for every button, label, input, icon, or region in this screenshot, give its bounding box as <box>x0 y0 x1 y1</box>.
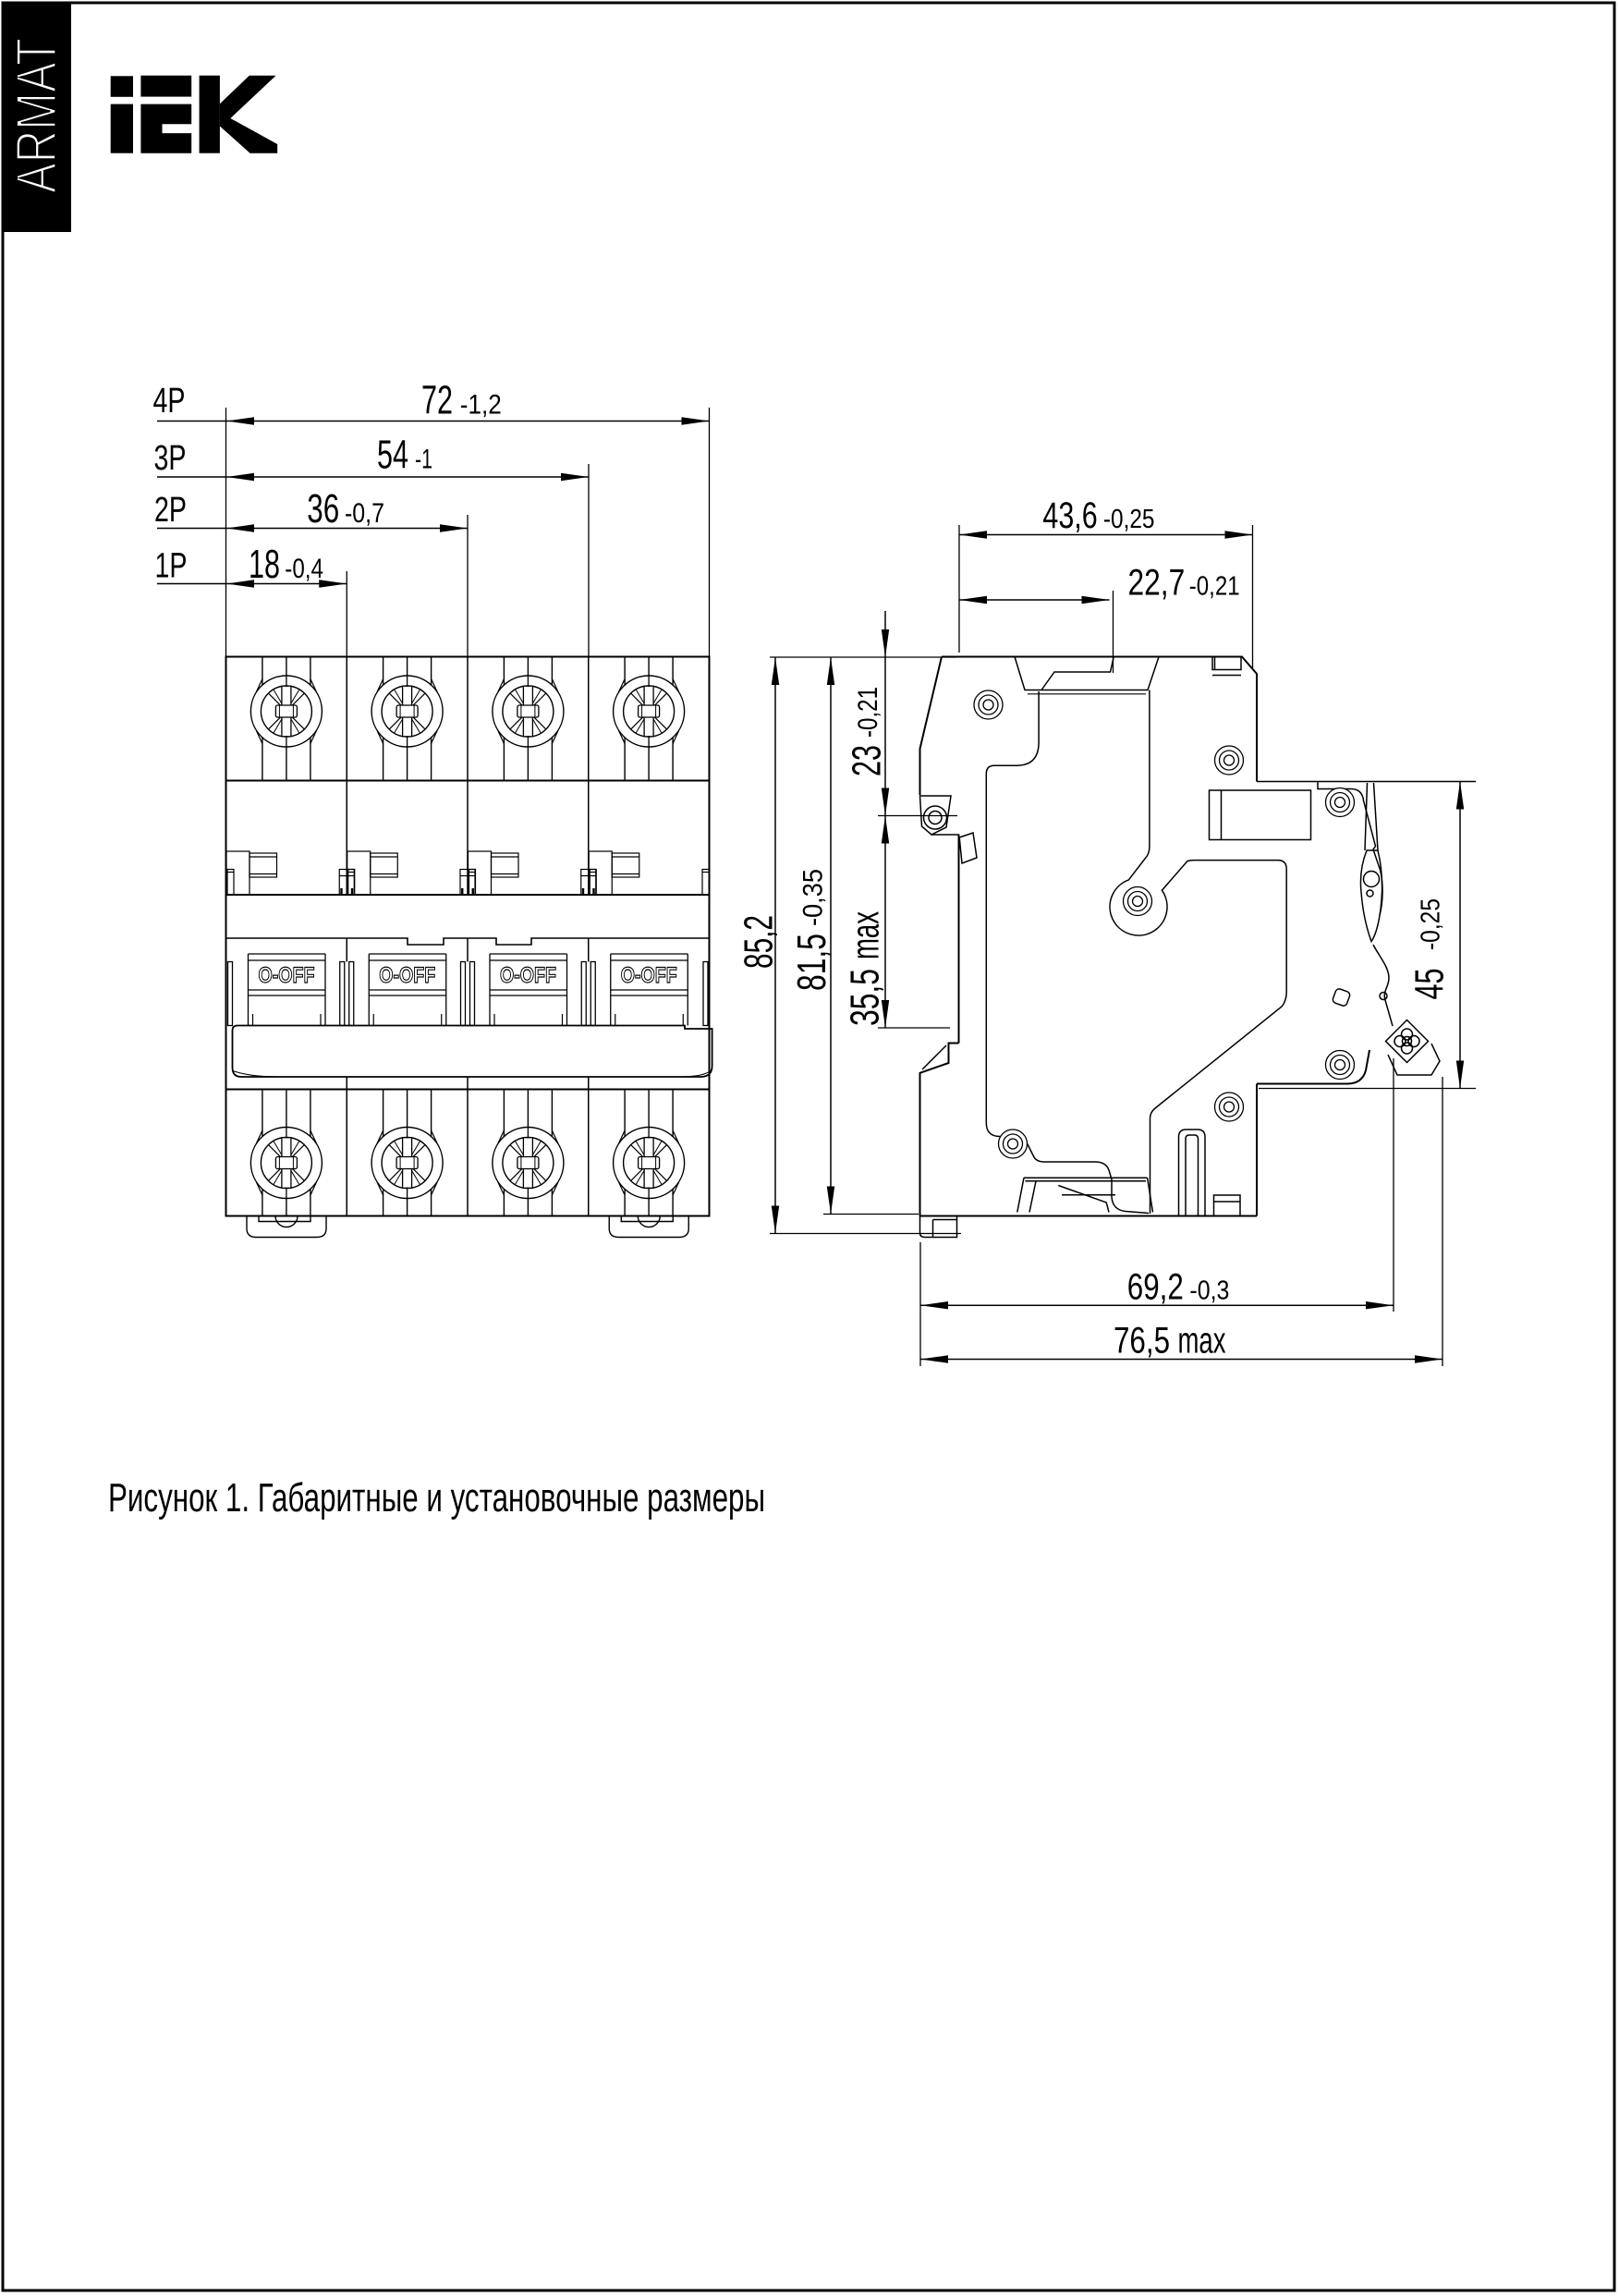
svg-text:ARMAT: ARMAT <box>6 38 69 193</box>
svg-text:85,2: 85,2 <box>736 915 782 969</box>
svg-text:22,7: 22,7 <box>1128 562 1186 603</box>
svg-text:23: 23 <box>845 745 890 776</box>
svg-text:76,5: 76,5 <box>1114 1321 1170 1362</box>
svg-text:45: 45 <box>1407 969 1453 1000</box>
svg-text:4P: 4P <box>153 382 186 421</box>
svg-text:-0,3: -0,3 <box>1189 1276 1229 1306</box>
svg-text:35,5: 35,5 <box>843 969 888 1026</box>
svg-text:-0,25: -0,25 <box>1103 505 1155 534</box>
svg-text:69,2: 69,2 <box>1127 1267 1184 1308</box>
svg-text:72: 72 <box>421 377 453 422</box>
svg-text:-0,21: -0,21 <box>1189 571 1240 601</box>
svg-text:36: 36 <box>307 486 339 531</box>
svg-text:Рисунок 1. Габаритные и устано: Рисунок 1. Габаритные и установочные раз… <box>108 1475 765 1520</box>
svg-text:-0,35: -0,35 <box>798 869 829 926</box>
svg-text:-0,25: -0,25 <box>1417 898 1446 950</box>
svg-text:1P: 1P <box>155 547 188 586</box>
svg-text:O-OFF: O-OFF <box>500 963 556 988</box>
svg-text:54: 54 <box>377 433 408 478</box>
svg-text:-0,7: -0,7 <box>345 498 384 529</box>
svg-text:max: max <box>844 911 887 959</box>
svg-text:O-OFF: O-OFF <box>621 963 677 988</box>
svg-text:-0,21: -0,21 <box>853 687 883 738</box>
svg-text:O-OFF: O-OFF <box>379 963 435 988</box>
svg-text:max: max <box>1178 1321 1226 1362</box>
svg-text:-1: -1 <box>415 445 432 475</box>
svg-text:43,6: 43,6 <box>1042 495 1097 536</box>
svg-text:O-OFF: O-OFF <box>259 963 315 988</box>
svg-text:-1,2: -1,2 <box>460 389 502 420</box>
svg-text:3P: 3P <box>154 439 187 478</box>
svg-text:-0,4: -0,4 <box>285 554 323 584</box>
svg-text:81,5: 81,5 <box>789 934 834 991</box>
svg-text:2P: 2P <box>154 491 187 530</box>
